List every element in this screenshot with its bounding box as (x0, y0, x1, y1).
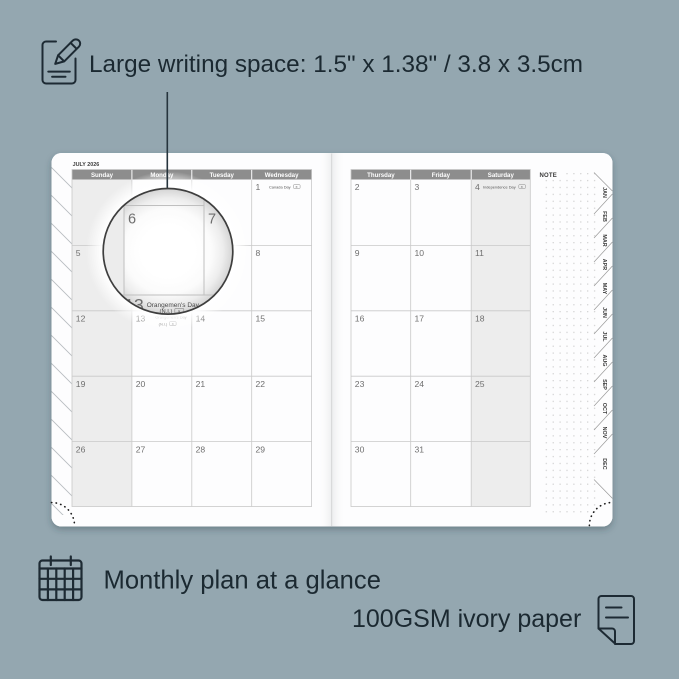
svg-text:21: 21 (196, 379, 206, 389)
svg-text:2: 2 (355, 182, 360, 192)
svg-text:22: 22 (256, 379, 266, 389)
svg-text:24: 24 (415, 379, 425, 389)
svg-text:20: 20 (136, 379, 146, 389)
svg-text:Canada Day: Canada Day (269, 184, 291, 189)
svg-text:Monthly plan at a glance: Monthly plan at a glance (104, 567, 381, 595)
svg-text:18: 18 (475, 314, 485, 324)
svg-text:FEB: FEB (601, 211, 607, 222)
svg-text:DEC: DEC (601, 458, 607, 469)
svg-text:Large writing space: 1.5" x 1.: Large writing space: 1.5" x 1.38" / 3.8 … (89, 51, 583, 78)
svg-text:11: 11 (475, 248, 484, 258)
svg-text:26: 26 (76, 444, 86, 454)
svg-text:12: 12 (76, 314, 86, 324)
svg-text:29: 29 (256, 444, 266, 454)
svg-text:NOTE: NOTE (540, 173, 557, 179)
svg-text:16: 16 (355, 314, 365, 324)
svg-text:9: 9 (355, 248, 360, 258)
svg-text:SEP: SEP (601, 379, 607, 390)
svg-text:27: 27 (136, 444, 146, 454)
svg-text:6: 6 (128, 211, 136, 227)
svg-text:OCT: OCT (601, 403, 607, 415)
svg-text:Thursday: Thursday (367, 172, 395, 179)
svg-text:10: 10 (415, 248, 425, 258)
svg-text:Wednesday: Wednesday (265, 172, 299, 179)
svg-text:JUL: JUL (601, 331, 607, 342)
svg-text:JUN: JUN (601, 307, 607, 318)
svg-text:28: 28 (196, 444, 206, 454)
svg-text:25: 25 (475, 379, 485, 389)
svg-text:Independence Day: Independence Day (483, 184, 516, 189)
svg-text:7: 7 (208, 211, 216, 227)
svg-text:1: 1 (256, 182, 261, 192)
svg-text:MAY: MAY (601, 283, 607, 295)
svg-text:APR: APR (601, 259, 607, 270)
svg-text:100GSM ivory paper: 100GSM ivory paper (352, 605, 581, 633)
svg-text:Sunday: Sunday (91, 172, 114, 179)
svg-text:8: 8 (256, 248, 261, 258)
svg-text:31: 31 (415, 444, 425, 454)
svg-text:17: 17 (415, 314, 425, 324)
svg-text:Orangemen's Day: Orangemen's Day (147, 302, 200, 309)
svg-text:Friday: Friday (432, 172, 451, 179)
svg-text:JULY 2026: JULY 2026 (73, 162, 100, 168)
svg-text:30: 30 (355, 444, 365, 454)
svg-text:MAR: MAR (601, 234, 607, 246)
svg-text:JAN: JAN (601, 187, 607, 198)
svg-text:NOV: NOV (601, 427, 607, 439)
svg-text:5: 5 (76, 248, 81, 258)
svg-text:Tuesday: Tuesday (210, 172, 235, 179)
svg-text:3: 3 (415, 182, 420, 192)
svg-text:4: 4 (475, 182, 480, 192)
svg-text:Saturday: Saturday (488, 172, 515, 179)
svg-text:15: 15 (256, 314, 266, 324)
svg-text:AUG: AUG (601, 355, 607, 367)
svg-text:19: 19 (76, 379, 86, 389)
svg-text:23: 23 (355, 379, 365, 389)
